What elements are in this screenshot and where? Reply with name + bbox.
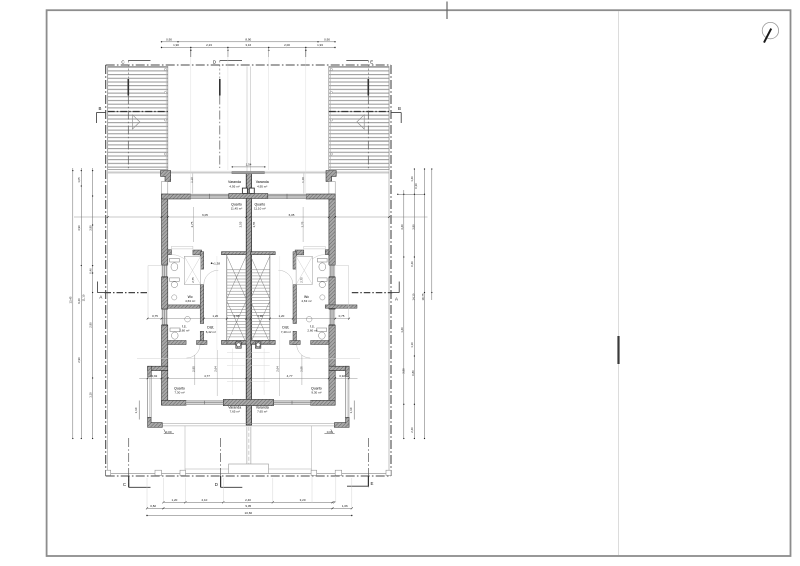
svg-text:3,16: 3,16 xyxy=(245,43,251,47)
svg-text:2,64: 2,64 xyxy=(276,366,280,372)
svg-text:4,95 m²: 4,95 m² xyxy=(229,184,239,188)
svg-text:0,92: 0,92 xyxy=(152,374,158,378)
svg-text:6,05: 6,05 xyxy=(289,213,295,217)
svg-text:A: A xyxy=(99,294,102,299)
svg-text:0,90: 0,90 xyxy=(324,37,330,41)
svg-text:2,40: 2,40 xyxy=(410,427,414,433)
svg-text:1,10: 1,10 xyxy=(134,407,138,413)
svg-text:2,95: 2,95 xyxy=(299,366,303,372)
svg-text:7,30 m²: 7,30 m² xyxy=(174,391,184,395)
svg-text:0,75: 0,75 xyxy=(339,314,345,318)
svg-text:B: B xyxy=(99,106,102,111)
svg-text:4,63 m²: 4,63 m² xyxy=(301,299,311,303)
svg-text:1,96: 1,96 xyxy=(257,314,263,318)
svg-text:2,10: 2,10 xyxy=(201,498,207,502)
svg-text:0,92: 0,92 xyxy=(339,374,345,378)
svg-text:3,50: 3,50 xyxy=(402,368,406,374)
svg-text:9,05: 9,05 xyxy=(245,504,251,508)
svg-text:1,10: 1,10 xyxy=(301,177,305,183)
svg-text:C: C xyxy=(123,482,126,487)
svg-text:2,60 m²: 2,60 m² xyxy=(307,329,317,333)
svg-text:7,65 m²: 7,65 m² xyxy=(230,410,240,414)
svg-text:1,20: 1,20 xyxy=(212,314,218,318)
svg-text:6,05: 6,05 xyxy=(202,213,208,217)
svg-text:6,42 m²: 6,42 m² xyxy=(206,330,216,334)
svg-text:4,77: 4,77 xyxy=(287,374,293,378)
svg-text:11,10 m²: 11,10 m² xyxy=(254,207,266,211)
svg-text:3,90: 3,90 xyxy=(411,224,415,230)
svg-text:0,46: 0,46 xyxy=(88,268,92,274)
svg-text:1,06: 1,06 xyxy=(342,504,348,508)
svg-text:0,30: 0,30 xyxy=(414,183,418,189)
svg-text:0,75: 0,75 xyxy=(152,314,158,318)
svg-text:1,20: 1,20 xyxy=(278,314,284,318)
svg-text:14,10: 14,10 xyxy=(411,293,415,300)
svg-text:2,90: 2,90 xyxy=(77,357,81,363)
svg-text:0,80: 0,80 xyxy=(411,370,415,376)
svg-text:0,46: 0,46 xyxy=(410,261,414,267)
svg-text:3,90: 3,90 xyxy=(77,225,81,231)
svg-text:1,20: 1,20 xyxy=(171,498,177,502)
svg-text:13,45: 13,45 xyxy=(68,296,72,303)
svg-text:11,10: 11,10 xyxy=(82,294,86,301)
svg-text:8,90: 8,90 xyxy=(245,37,251,41)
svg-text:7,40 m²: 7,40 m² xyxy=(281,330,291,334)
svg-text:2,23: 2,23 xyxy=(206,43,212,47)
svg-text:1,96: 1,96 xyxy=(234,314,240,318)
svg-text:D: D xyxy=(213,60,216,65)
svg-text:4,63 m²: 4,63 m² xyxy=(185,299,195,303)
svg-text:D: D xyxy=(215,482,218,487)
svg-text:1,90: 1,90 xyxy=(173,43,179,47)
svg-text:3,20: 3,20 xyxy=(300,498,306,502)
svg-text:1,10: 1,10 xyxy=(88,392,92,398)
svg-text:1,10: 1,10 xyxy=(410,342,414,348)
svg-text:+1,38: +1,38 xyxy=(212,261,220,265)
svg-text:1,54: 1,54 xyxy=(246,163,252,167)
svg-text:4,77: 4,77 xyxy=(204,374,210,378)
svg-text:E: E xyxy=(370,60,373,65)
svg-text:0,82: 0,82 xyxy=(150,504,156,508)
svg-text:2,55: 2,55 xyxy=(239,221,243,227)
svg-text:2,64: 2,64 xyxy=(213,366,217,372)
svg-text:9,30 m²: 9,30 m² xyxy=(311,391,321,395)
svg-text:2,60 m²: 2,60 m² xyxy=(179,329,189,333)
svg-text:4,95 m²: 4,95 m² xyxy=(257,184,267,188)
svg-text:2,75: 2,75 xyxy=(191,277,195,283)
svg-text:1,05: 1,05 xyxy=(77,177,81,183)
svg-text:A: A xyxy=(395,297,398,302)
svg-text:1,40: 1,40 xyxy=(400,327,404,333)
svg-text:3,90: 3,90 xyxy=(88,225,92,231)
svg-text:0,90: 0,90 xyxy=(166,37,172,41)
svg-text:3,40: 3,40 xyxy=(400,224,404,230)
svg-text:C: C xyxy=(121,60,124,65)
svg-text:2,00: 2,00 xyxy=(284,43,290,47)
svg-text:2,55: 2,55 xyxy=(252,221,256,227)
svg-text:18,75: 18,75 xyxy=(421,293,425,300)
svg-text:2,75: 2,75 xyxy=(301,221,305,227)
svg-text:7,65 m²: 7,65 m² xyxy=(257,410,267,414)
svg-text:9,20: 9,20 xyxy=(77,298,81,304)
svg-text:2,40: 2,40 xyxy=(245,498,251,502)
svg-text:1,93: 1,93 xyxy=(317,43,323,47)
svg-text:E: E xyxy=(371,481,374,486)
svg-text:1,10: 1,10 xyxy=(349,407,353,413)
svg-text:2,90: 2,90 xyxy=(88,322,92,328)
svg-text:11,45 m²: 11,45 m² xyxy=(231,207,243,211)
svg-text:1,46: 1,46 xyxy=(410,176,414,182)
svg-text:2,75: 2,75 xyxy=(300,277,304,283)
svg-text:B: B xyxy=(398,106,401,111)
svg-text:10,66: 10,66 xyxy=(245,511,253,515)
